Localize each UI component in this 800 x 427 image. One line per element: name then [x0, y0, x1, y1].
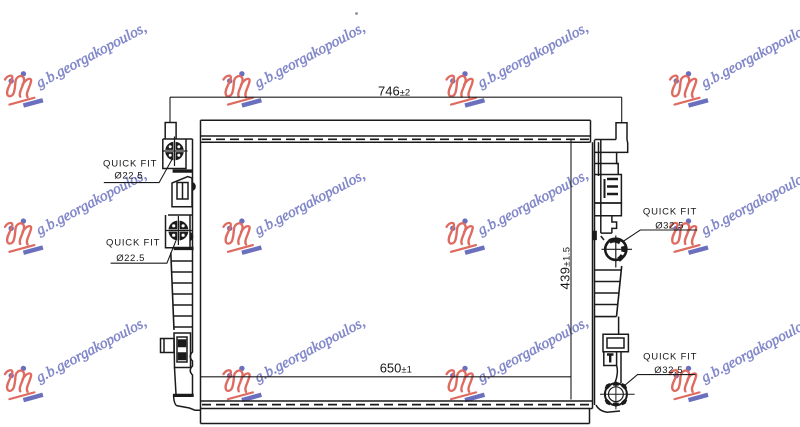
svg-text:QUICK FIT: QUICK FIT [643, 352, 697, 363]
svg-text:QUICK FIT: QUICK FIT [106, 238, 160, 249]
svg-text:QUICK FIT: QUICK FIT [643, 207, 697, 218]
svg-text:Ø22.5: Ø22.5 [116, 253, 145, 264]
svg-text:Ø22.5: Ø22.5 [114, 170, 143, 181]
svg-text:QUICK FIT: QUICK FIT [103, 159, 157, 170]
